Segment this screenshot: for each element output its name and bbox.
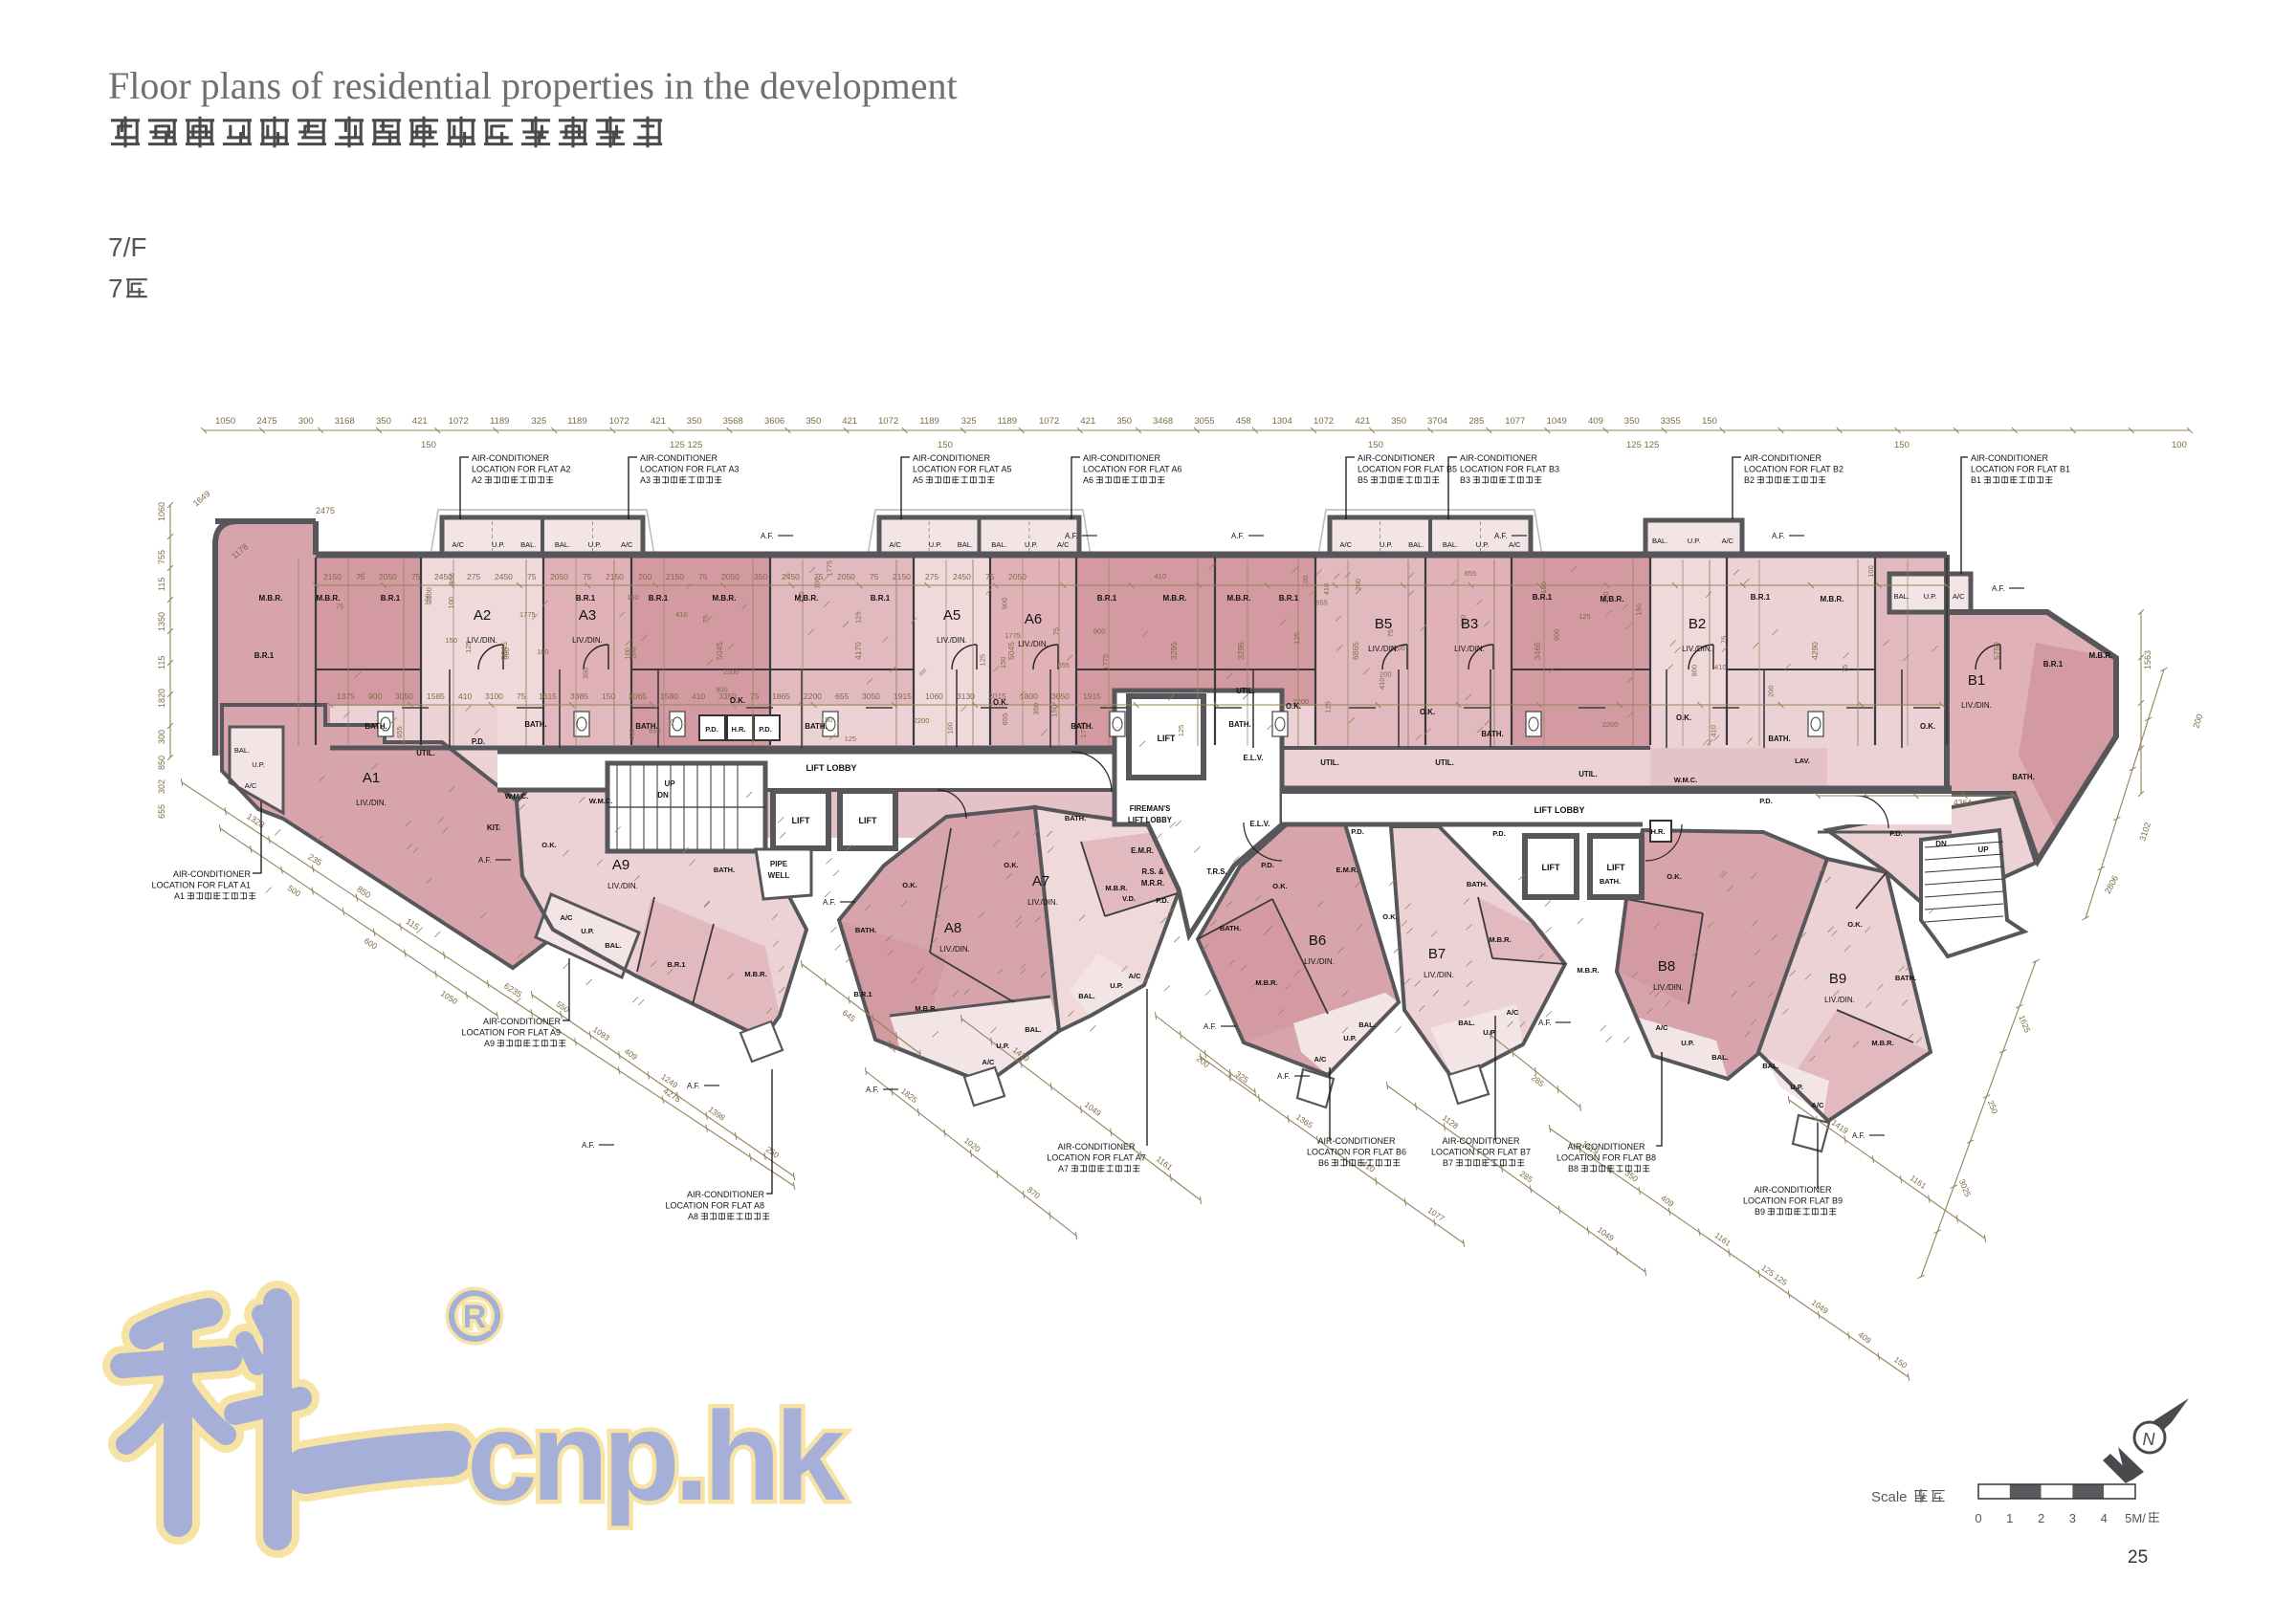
svg-text:AIR-CONDITIONER: AIR-CONDITIONER xyxy=(1744,453,1822,463)
svg-text:A/C: A/C xyxy=(1722,537,1734,545)
svg-text:A.F.: A.F. xyxy=(582,1141,595,1150)
svg-text:125: 125 xyxy=(978,654,986,667)
svg-text:150: 150 xyxy=(1635,603,1644,616)
svg-text:755: 755 xyxy=(157,550,166,564)
svg-text:LIFT LOBBY: LIFT LOBBY xyxy=(1534,805,1585,815)
svg-text:1072: 1072 xyxy=(1039,416,1059,427)
svg-text:P.D.: P.D. xyxy=(705,725,718,734)
svg-text:LIV./DIN.: LIV./DIN. xyxy=(1454,645,1485,653)
svg-text:U.P.: U.P. xyxy=(1110,981,1123,990)
svg-text:302: 302 xyxy=(157,779,166,794)
svg-text:655: 655 xyxy=(1001,713,1009,726)
svg-text:B5: B5 xyxy=(1358,475,1368,485)
svg-text:UP: UP xyxy=(1977,845,1989,854)
svg-text:A.F.: A.F. xyxy=(1065,532,1078,540)
svg-text:LIFT: LIFT xyxy=(859,816,877,825)
svg-text:A6: A6 xyxy=(1083,475,1093,485)
svg-text:cnp.hk: cnp.hk xyxy=(467,1386,846,1526)
svg-text:75: 75 xyxy=(668,719,676,727)
svg-text:O.K.: O.K. xyxy=(1286,702,1301,711)
svg-text:25: 25 xyxy=(2128,1547,2148,1568)
svg-text:300: 300 xyxy=(298,416,314,427)
svg-text:655: 655 xyxy=(1057,661,1070,669)
svg-text:A8: A8 xyxy=(688,1212,698,1221)
svg-text:75: 75 xyxy=(411,572,421,581)
svg-text:410: 410 xyxy=(692,691,705,701)
svg-text:75: 75 xyxy=(583,572,592,581)
svg-text:BATH.: BATH. xyxy=(1895,974,1916,982)
svg-text:A/C: A/C xyxy=(1507,1008,1520,1017)
svg-text:3295: 3295 xyxy=(1169,642,1179,660)
svg-text:3050: 3050 xyxy=(395,691,413,701)
svg-text:150: 150 xyxy=(627,593,639,602)
svg-text:M.B.R.: M.B.R. xyxy=(1821,595,1844,603)
svg-text:R: R xyxy=(463,1299,487,1335)
svg-text:A/C: A/C xyxy=(889,540,901,549)
svg-text:P.D.: P.D. xyxy=(759,725,772,734)
svg-text:125: 125 xyxy=(1177,725,1185,737)
svg-text:A7: A7 xyxy=(1032,873,1049,889)
svg-text:B2: B2 xyxy=(1689,616,1706,632)
svg-text:LIV./DIN.: LIV./DIN. xyxy=(1018,640,1049,648)
svg-text:M.B.R.: M.B.R. xyxy=(915,1004,937,1013)
svg-text:A/C: A/C xyxy=(982,1058,996,1066)
svg-text:125: 125 xyxy=(1324,701,1333,713)
svg-text:275: 275 xyxy=(467,572,480,581)
svg-text:BATH.: BATH. xyxy=(364,722,386,731)
svg-text:LOCATION FOR FLAT B2: LOCATION FOR FLAT B2 xyxy=(1744,465,1843,474)
svg-text:P.D.: P.D. xyxy=(1351,827,1364,836)
svg-text:U.P.: U.P. xyxy=(588,540,602,549)
svg-text:2200: 2200 xyxy=(804,691,822,701)
svg-text:A/C: A/C xyxy=(1314,1055,1328,1064)
svg-text:5045: 5045 xyxy=(499,642,509,660)
svg-text:B5: B5 xyxy=(1375,616,1392,632)
svg-text:75: 75 xyxy=(750,691,760,701)
svg-text:A1: A1 xyxy=(363,770,380,786)
svg-text:2150: 2150 xyxy=(323,572,342,581)
svg-text:200: 200 xyxy=(1766,685,1775,697)
svg-text:U.P.: U.P. xyxy=(929,540,942,549)
svg-text:P.D.: P.D. xyxy=(1492,829,1506,838)
svg-text:O.K.: O.K. xyxy=(1272,882,1287,890)
svg-text:A.F.: A.F. xyxy=(478,856,492,865)
svg-text:1865: 1865 xyxy=(772,691,790,701)
svg-text:7: 7 xyxy=(108,274,123,303)
svg-text:410: 410 xyxy=(1155,572,1167,581)
svg-text:E.L.V.: E.L.V. xyxy=(1244,754,1264,762)
svg-text:1563: 1563 xyxy=(2143,650,2152,669)
svg-text:LIV./DIN.: LIV./DIN. xyxy=(1961,701,1992,710)
svg-text:350: 350 xyxy=(806,416,821,427)
svg-text:LIV./DIN.: LIV./DIN. xyxy=(937,636,967,645)
svg-text:LIFT: LIFT xyxy=(792,816,810,825)
svg-text:B3: B3 xyxy=(1461,616,1478,632)
svg-text:75: 75 xyxy=(356,572,365,581)
svg-text:M.B.R.: M.B.R. xyxy=(1163,594,1187,603)
svg-text:M.B.R.: M.B.R. xyxy=(1601,595,1624,603)
svg-text:BATH.: BATH. xyxy=(805,722,827,731)
svg-text:BAL.: BAL. xyxy=(1762,1062,1779,1070)
svg-text:O.K.: O.K. xyxy=(1382,912,1397,921)
svg-text:350: 350 xyxy=(1624,416,1640,427)
svg-text:B.R.1: B.R.1 xyxy=(1751,593,1771,602)
svg-text:BAL.: BAL. xyxy=(1894,592,1910,601)
svg-text:421: 421 xyxy=(412,416,428,427)
svg-text:100: 100 xyxy=(1866,565,1875,578)
svg-text:1072: 1072 xyxy=(609,416,629,427)
svg-text:UP: UP xyxy=(664,779,675,788)
svg-text:LOCATION FOR FLAT A5: LOCATION FOR FLAT A5 xyxy=(913,465,1012,474)
svg-text:410: 410 xyxy=(1709,725,1717,737)
svg-text:O.K.: O.K. xyxy=(1667,872,1681,881)
svg-text:O.K.: O.K. xyxy=(1004,861,1018,869)
svg-text:1820: 1820 xyxy=(157,689,166,708)
svg-text:H.R.: H.R. xyxy=(732,725,746,734)
svg-text:AIR-CONDITIONER: AIR-CONDITIONER xyxy=(687,1190,765,1199)
svg-text:B.R.1: B.R.1 xyxy=(381,594,401,603)
svg-text:LIV./DIN.: LIV./DIN. xyxy=(467,636,497,645)
svg-text:M.B.R.: M.B.R. xyxy=(1871,1039,1893,1047)
svg-text:UTIL.: UTIL. xyxy=(1578,770,1598,779)
svg-text:LIFT LOBBY: LIFT LOBBY xyxy=(806,763,857,773)
svg-text:A.F.: A.F. xyxy=(1992,584,2005,593)
svg-text:B.R.1: B.R.1 xyxy=(254,651,275,660)
svg-text:1615: 1615 xyxy=(539,691,557,701)
svg-text:6865: 6865 xyxy=(1351,642,1360,660)
svg-text:U.P.: U.P. xyxy=(1790,1083,1803,1091)
svg-text:275: 275 xyxy=(925,572,938,581)
svg-text:200: 200 xyxy=(1380,670,1392,679)
svg-text:M.B.R.: M.B.R. xyxy=(317,594,341,603)
svg-text:350: 350 xyxy=(754,572,767,581)
svg-text:BATH.: BATH. xyxy=(1467,880,1488,888)
svg-text:M.B.R.: M.B.R. xyxy=(1489,935,1511,944)
svg-text:75: 75 xyxy=(985,572,995,581)
svg-text:U.P.: U.P. xyxy=(492,540,505,549)
svg-text:B.R.1: B.R.1 xyxy=(667,960,685,969)
svg-text:A.F.: A.F. xyxy=(1494,532,1508,540)
svg-text:P.D.: P.D. xyxy=(1261,861,1274,869)
svg-text:2475: 2475 xyxy=(256,416,276,427)
svg-text:1304: 1304 xyxy=(1272,416,1292,427)
svg-text:409: 409 xyxy=(1588,416,1603,427)
svg-text:150: 150 xyxy=(1368,440,1383,450)
svg-text:O.K.: O.K. xyxy=(993,698,1008,707)
svg-text:P.D.: P.D. xyxy=(1759,797,1773,805)
svg-text:B.R.1: B.R.1 xyxy=(1533,593,1553,602)
svg-text:BATH.: BATH. xyxy=(1220,924,1241,932)
svg-text:LIV./DIN.: LIV./DIN. xyxy=(1368,645,1399,653)
svg-text:5M/: 5M/ xyxy=(2125,1511,2146,1525)
svg-text:1915: 1915 xyxy=(894,691,912,701)
svg-text:WELL: WELL xyxy=(768,871,790,880)
svg-text:A/C: A/C xyxy=(1057,540,1070,549)
svg-text:A2: A2 xyxy=(474,607,491,624)
svg-text:2150: 2150 xyxy=(893,572,911,581)
svg-text:AIR-CONDITIONER: AIR-CONDITIONER xyxy=(173,869,252,879)
svg-text:M.B.R.: M.B.R. xyxy=(744,970,766,978)
svg-text:M.B.R.: M.B.R. xyxy=(1227,594,1251,603)
svg-text:1775: 1775 xyxy=(1004,631,1021,640)
svg-text:LOCATION FOR FLAT A2: LOCATION FOR FLAT A2 xyxy=(472,465,571,474)
svg-text:1189: 1189 xyxy=(998,416,1017,427)
svg-text:M.R.R.: M.R.R. xyxy=(1141,879,1164,888)
svg-text:655: 655 xyxy=(1315,599,1328,607)
svg-text:A.F.: A.F. xyxy=(1231,532,1245,540)
svg-text:BATH.: BATH. xyxy=(1600,877,1621,886)
svg-text:BAL.: BAL. xyxy=(1652,537,1667,545)
svg-text:BATH.: BATH. xyxy=(1065,814,1086,822)
svg-text:LIV./DIN.: LIV./DIN. xyxy=(356,799,386,807)
svg-text:AIR-CONDITIONER: AIR-CONDITIONER xyxy=(1971,453,2049,463)
svg-text:U.P.: U.P. xyxy=(1924,592,1937,601)
svg-text:410: 410 xyxy=(1714,663,1727,671)
svg-text:325: 325 xyxy=(531,416,546,427)
svg-text:A/C: A/C xyxy=(1953,592,1965,601)
svg-text:M.B.R.: M.B.R. xyxy=(2089,651,2113,660)
svg-text:M.B.R.: M.B.R. xyxy=(1105,884,1127,892)
svg-text:A.F.: A.F. xyxy=(1852,1131,1865,1140)
svg-text:LIV./DIN.: LIV./DIN. xyxy=(1027,898,1058,907)
svg-text:U.P.: U.P. xyxy=(996,1042,1009,1050)
svg-text:3465: 3465 xyxy=(1533,642,1542,660)
svg-text:LIV./DIN.: LIV./DIN. xyxy=(1653,983,1684,992)
svg-text:1915: 1915 xyxy=(1083,691,1101,701)
svg-text:300: 300 xyxy=(157,730,166,744)
svg-text:A7: A7 xyxy=(1058,1164,1069,1173)
svg-text:BAL.: BAL. xyxy=(1078,992,1095,1000)
svg-text:M.B.R.: M.B.R. xyxy=(259,594,283,603)
svg-text:B3: B3 xyxy=(1460,475,1470,485)
svg-text:Scale: Scale xyxy=(1871,1489,1908,1505)
svg-text:E.M.R.: E.M.R. xyxy=(1131,846,1154,855)
svg-text:115: 115 xyxy=(157,578,166,591)
svg-text:2450: 2450 xyxy=(495,572,513,581)
svg-text:1580: 1580 xyxy=(660,691,678,701)
svg-text:1072: 1072 xyxy=(449,416,469,427)
svg-text:100: 100 xyxy=(2172,440,2187,450)
svg-text:75: 75 xyxy=(1720,636,1729,644)
svg-text:UTIL.: UTIL. xyxy=(1236,687,1255,695)
svg-text:A.F.: A.F. xyxy=(823,898,836,907)
svg-text:LIFT: LIFT xyxy=(1158,734,1176,743)
svg-text:B7: B7 xyxy=(1443,1158,1453,1168)
svg-text:A.F.: A.F. xyxy=(1277,1072,1291,1081)
svg-text:421: 421 xyxy=(1355,416,1370,427)
svg-text:UTIL.: UTIL. xyxy=(1435,758,1454,767)
svg-text:75: 75 xyxy=(336,603,343,611)
svg-text:3055: 3055 xyxy=(1194,416,1214,427)
svg-text:DN: DN xyxy=(1935,840,1947,848)
svg-text:P.D.: P.D. xyxy=(1889,829,1903,838)
svg-text:350: 350 xyxy=(1116,416,1132,427)
svg-text:LOCATION FOR FLAT B7: LOCATION FOR FLAT B7 xyxy=(1431,1148,1531,1157)
svg-text:115: 115 xyxy=(157,656,166,669)
svg-text:DN: DN xyxy=(657,791,669,800)
svg-text:150: 150 xyxy=(445,636,457,645)
svg-text:2200: 2200 xyxy=(425,587,433,603)
svg-text:A5: A5 xyxy=(943,607,960,624)
svg-text:900: 900 xyxy=(368,691,382,701)
svg-text:H.R.: H.R. xyxy=(1651,827,1666,836)
svg-text:5045: 5045 xyxy=(1006,642,1016,660)
svg-text:UTIL.: UTIL. xyxy=(416,749,435,757)
svg-text:B.R.1: B.R.1 xyxy=(871,594,891,603)
svg-text:BAL.: BAL. xyxy=(1711,1053,1729,1062)
svg-text:B.R.1: B.R.1 xyxy=(853,990,872,998)
svg-text:M.B.R.: M.B.R. xyxy=(713,594,737,603)
svg-text:LOCATION FOR FLAT B9: LOCATION FOR FLAT B9 xyxy=(1743,1196,1843,1206)
svg-text:AIR-CONDITIONER: AIR-CONDITIONER xyxy=(1358,453,1436,463)
svg-text:BATH.: BATH. xyxy=(1228,720,1250,729)
svg-text:LIV./DIN.: LIV./DIN. xyxy=(1304,957,1335,966)
svg-text:AIR-CONDITIONER: AIR-CONDITIONER xyxy=(1083,453,1161,463)
svg-text:LIV./DIN.: LIV./DIN. xyxy=(572,636,603,645)
svg-text:655: 655 xyxy=(835,691,849,701)
svg-text:2200: 2200 xyxy=(914,716,930,725)
svg-text:BAL.: BAL. xyxy=(1458,1019,1475,1027)
svg-text:458: 458 xyxy=(1236,416,1251,427)
svg-text:LIV./DIN.: LIV./DIN. xyxy=(1424,971,1454,979)
svg-text:LIV./DIN.: LIV./DIN. xyxy=(1824,996,1855,1004)
svg-text:E.M.R.: E.M.R. xyxy=(1336,866,1358,874)
svg-text:B6: B6 xyxy=(1309,932,1326,949)
svg-text:U.P.: U.P. xyxy=(1688,537,1701,545)
svg-text:150: 150 xyxy=(602,691,615,701)
svg-text:75: 75 xyxy=(1841,665,1849,672)
svg-text:O.K.: O.K. xyxy=(1920,722,1935,731)
svg-text:125: 125 xyxy=(1292,632,1301,645)
svg-text:1189: 1189 xyxy=(490,416,509,427)
svg-text:B.R.1: B.R.1 xyxy=(2043,660,2064,669)
svg-text:A8: A8 xyxy=(944,920,961,936)
svg-text:1060: 1060 xyxy=(157,502,166,521)
svg-text:LOCATION FOR FLAT A8: LOCATION FOR FLAT A8 xyxy=(665,1201,764,1211)
svg-text:A/C: A/C xyxy=(1129,972,1142,980)
svg-text:BAL.: BAL. xyxy=(605,941,622,950)
svg-text:U.P.: U.P. xyxy=(1025,540,1038,549)
svg-text:285: 285 xyxy=(1468,416,1484,427)
svg-text:421: 421 xyxy=(651,416,666,427)
svg-text:3: 3 xyxy=(2069,1511,2076,1525)
svg-text:2050: 2050 xyxy=(1008,572,1027,581)
svg-text:125: 125 xyxy=(845,735,857,743)
svg-text:3568: 3568 xyxy=(723,416,743,427)
svg-text:LIV./DIN.: LIV./DIN. xyxy=(939,945,970,954)
svg-text:2450: 2450 xyxy=(953,572,971,581)
svg-text:LOCATION FOR FLAT A9: LOCATION FOR FLAT A9 xyxy=(461,1028,561,1038)
svg-text:LIV./DIN.: LIV./DIN. xyxy=(607,882,638,890)
svg-text:LOCATION FOR FLAT B1: LOCATION FOR FLAT B1 xyxy=(1971,465,2070,474)
svg-text:B1: B1 xyxy=(1968,672,1985,689)
svg-text:421: 421 xyxy=(842,416,857,427)
svg-text:U.P.: U.P. xyxy=(1476,540,1490,549)
svg-text:O.K.: O.K. xyxy=(902,881,916,889)
svg-text:O.K.: O.K. xyxy=(1847,920,1862,929)
svg-text:2150: 2150 xyxy=(666,572,684,581)
svg-text:350: 350 xyxy=(687,416,702,427)
svg-text:350: 350 xyxy=(376,416,391,427)
svg-text:A.F.: A.F. xyxy=(1772,532,1785,540)
svg-text:BATH.: BATH. xyxy=(524,720,546,729)
svg-text:2050: 2050 xyxy=(550,572,568,581)
svg-text:T.R.S.: T.R.S. xyxy=(1206,867,1226,876)
svg-text:2450: 2450 xyxy=(782,572,800,581)
svg-text:1049: 1049 xyxy=(1547,416,1567,427)
svg-text:150: 150 xyxy=(1539,581,1548,594)
svg-text:LAV.: LAV. xyxy=(1795,757,1810,765)
svg-text:3385: 3385 xyxy=(570,691,588,701)
svg-text:LOCATION FOR FLAT B5: LOCATION FOR FLAT B5 xyxy=(1358,465,1457,474)
svg-text:200: 200 xyxy=(629,647,638,660)
svg-text:900: 900 xyxy=(1553,629,1561,642)
svg-text:B.R.1: B.R.1 xyxy=(1279,594,1299,603)
svg-text:75: 75 xyxy=(1052,627,1061,635)
svg-text:M.B.R.: M.B.R. xyxy=(1577,966,1599,975)
svg-text:A3: A3 xyxy=(579,607,596,624)
svg-text:4290: 4290 xyxy=(1810,642,1820,660)
svg-text:A6: A6 xyxy=(1025,611,1042,627)
svg-text:2450: 2450 xyxy=(434,572,453,581)
svg-text:AIR-CONDITIONER: AIR-CONDITIONER xyxy=(1058,1142,1137,1151)
svg-text:1585: 1585 xyxy=(427,691,445,701)
svg-text:2050: 2050 xyxy=(379,572,397,581)
svg-text:655: 655 xyxy=(395,726,404,738)
svg-text:100: 100 xyxy=(447,597,455,609)
svg-text:W.M.C.: W.M.C. xyxy=(589,797,613,805)
svg-text:3050: 3050 xyxy=(862,691,880,701)
svg-text:75: 75 xyxy=(870,572,879,581)
svg-text:2475: 2475 xyxy=(316,506,335,515)
svg-text:LOCATION FOR FLAT B8: LOCATION FOR FLAT B8 xyxy=(1556,1153,1656,1163)
svg-text:4364: 4364 xyxy=(1954,798,1972,807)
svg-text:100: 100 xyxy=(945,722,954,735)
svg-text:2150: 2150 xyxy=(606,572,624,581)
svg-text:B.R.1: B.R.1 xyxy=(576,594,596,603)
svg-text:B.R.1: B.R.1 xyxy=(1097,594,1117,603)
svg-text:100: 100 xyxy=(537,647,549,656)
svg-text:AIR-CONDITIONER: AIR-CONDITIONER xyxy=(1568,1142,1646,1151)
svg-text:BATH.: BATH. xyxy=(714,866,735,874)
svg-text:3468: 3468 xyxy=(1153,416,1173,427)
svg-text:2: 2 xyxy=(2038,1511,2044,1525)
svg-text:BATH.: BATH. xyxy=(2012,773,2034,781)
svg-text:3295: 3295 xyxy=(1236,642,1246,660)
svg-text:O.K.: O.K. xyxy=(541,841,556,849)
svg-text:150: 150 xyxy=(1894,440,1910,450)
svg-text:B1: B1 xyxy=(1971,475,1981,485)
svg-text:O.K.: O.K. xyxy=(1676,713,1691,722)
svg-text:125: 125 xyxy=(1578,612,1591,621)
svg-text:1350: 1350 xyxy=(157,612,166,631)
svg-text:A.F.: A.F. xyxy=(761,532,774,540)
svg-text:A2: A2 xyxy=(472,475,482,485)
svg-text:75: 75 xyxy=(814,572,824,581)
svg-text:1775: 1775 xyxy=(826,560,834,577)
svg-text:AIR-CONDITIONER: AIR-CONDITIONER xyxy=(913,453,991,463)
svg-text:A/C: A/C xyxy=(561,913,574,922)
svg-text:3168: 3168 xyxy=(335,416,355,427)
svg-text:A.F.: A.F. xyxy=(1203,1022,1217,1031)
svg-text:A9: A9 xyxy=(484,1039,495,1048)
svg-text:AIR-CONDITIONER: AIR-CONDITIONER xyxy=(640,453,718,463)
svg-text:1189: 1189 xyxy=(919,416,938,427)
svg-text:A.F.: A.F. xyxy=(687,1082,700,1090)
svg-text:B9: B9 xyxy=(1829,971,1846,987)
svg-text:W.M.C.: W.M.C. xyxy=(505,792,529,801)
svg-text:AIR-CONDITIONER: AIR-CONDITIONER xyxy=(483,1017,562,1026)
